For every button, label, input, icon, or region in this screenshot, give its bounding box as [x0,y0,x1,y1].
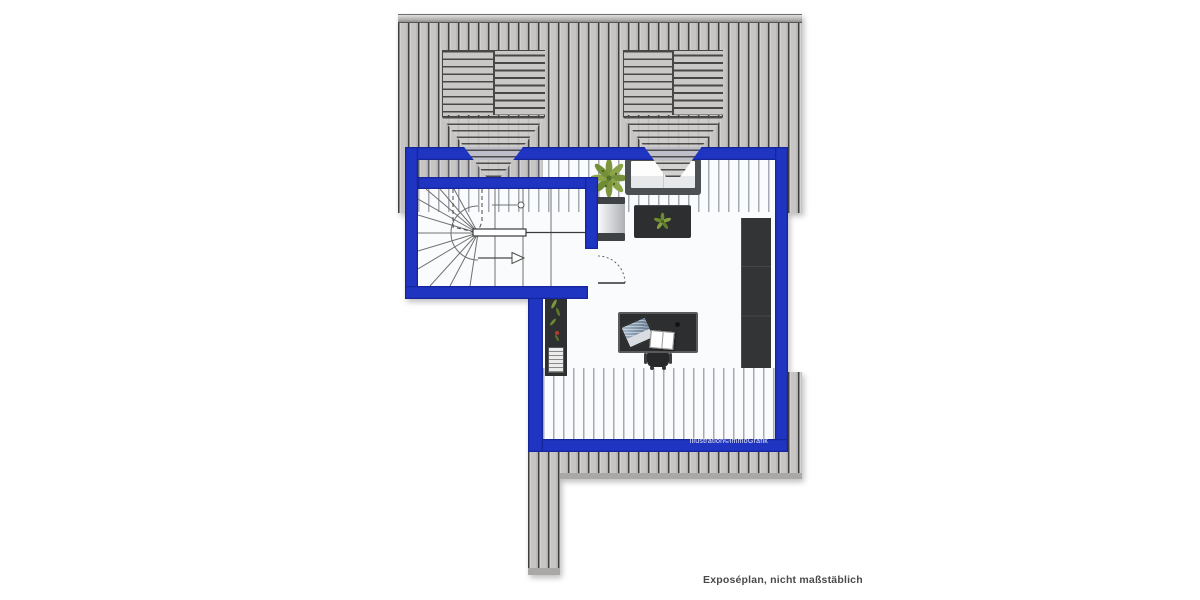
wall-north [405,147,788,160]
roof-window-pane [624,51,672,115]
wall-west-lower [528,286,543,452]
newel-post [518,202,524,208]
wall-east [775,147,788,452]
table-plant [653,212,672,231]
desk-object [675,322,680,327]
plant-center [606,175,611,180]
shelf-basket [548,347,564,373]
armchair-seat [597,204,625,233]
wall-west-upper [405,147,418,299]
open-book [649,330,674,350]
shelf-red-item [555,331,559,335]
wall-stair-east [585,177,598,249]
roof-slope-overlay-south [543,368,775,439]
door-swing [585,243,643,291]
footnote: Exposéplan, nicht maßstäblich [703,574,863,586]
winder-staircase [418,189,585,286]
desk [618,312,698,353]
direction-arrow [512,253,524,264]
wardrobe [741,218,771,368]
shelf-unit [545,297,567,376]
balcony-edge [560,473,802,479]
wall-stair-south [405,286,588,299]
shelf-plant-sprigs [545,298,567,346]
chair-wheel [650,366,654,370]
chair-armrest [669,353,672,364]
coffee-table [634,205,691,238]
terrace-strip-edge [528,568,560,575]
roof-window-pane [493,51,545,115]
door-arc [598,256,625,283]
balcony-deck-right [788,372,802,473]
laptop-screen [622,318,650,339]
terrace-strip [528,452,560,568]
chair-wheel [662,366,666,370]
stair-treads [418,189,551,286]
roof-window-pane [672,51,723,115]
roof-ridge [398,14,802,23]
floorplan-illustration: Illustration©immoGrafik [0,0,1200,600]
roof-window-pane [443,51,493,115]
watermark: Illustration©immoGrafik [688,436,768,448]
roof-window-right [623,50,723,117]
book-spine [661,332,663,348]
floorplan-canvas: Illustration©immoGrafik Exposéplan, nich… [0,0,1200,600]
roof-window-left [442,50,545,117]
handrail [473,229,526,236]
wall-stair-north [418,177,598,189]
balcony-deck [528,452,802,473]
